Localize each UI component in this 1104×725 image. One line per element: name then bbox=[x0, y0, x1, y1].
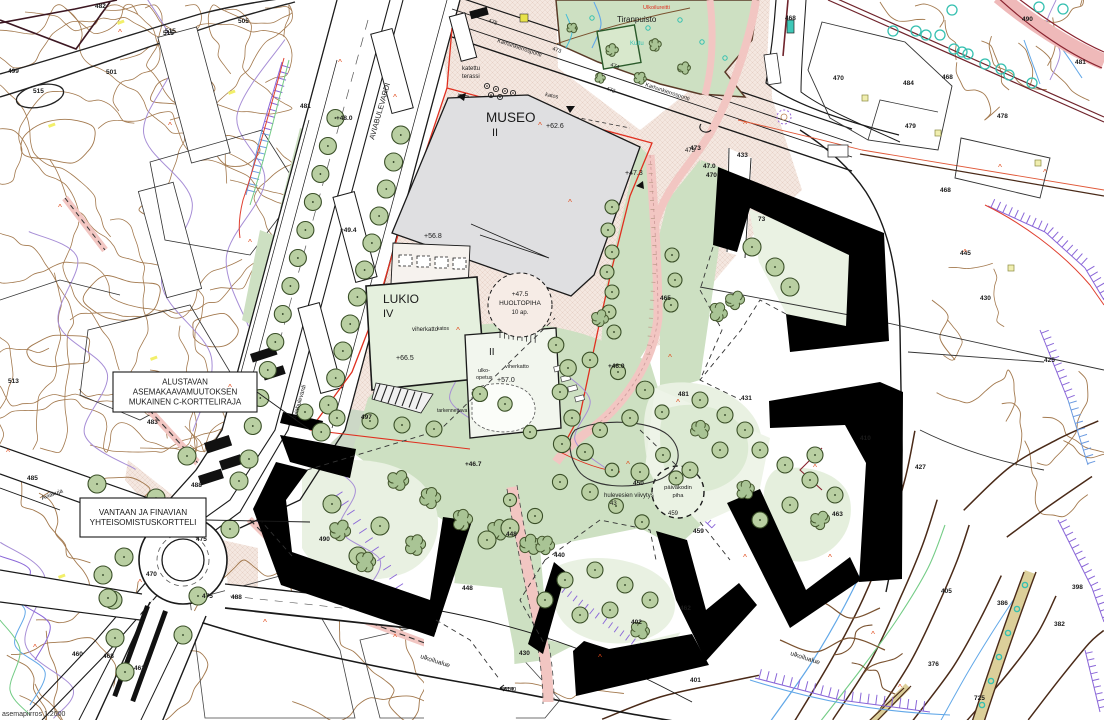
svg-text:465: 465 bbox=[660, 295, 671, 302]
svg-text:505: 505 bbox=[238, 18, 249, 25]
svg-text:473: 473 bbox=[690, 145, 701, 152]
svg-text:II: II bbox=[489, 347, 495, 358]
svg-text:479: 479 bbox=[905, 123, 916, 130]
svg-text:405: 405 bbox=[941, 588, 952, 595]
svg-text:483: 483 bbox=[147, 419, 158, 426]
svg-text:488: 488 bbox=[191, 482, 202, 489]
svg-text:459: 459 bbox=[693, 528, 704, 535]
svg-text:433: 433 bbox=[737, 152, 748, 159]
svg-text:^: ^ bbox=[393, 633, 397, 642]
svg-text:460: 460 bbox=[72, 651, 83, 658]
svg-text:VANTAAN JA FINAVIAN: VANTAAN JA FINAVIAN bbox=[99, 508, 187, 517]
svg-text:^: ^ bbox=[871, 630, 875, 639]
svg-text:386: 386 bbox=[997, 600, 1008, 607]
svg-text:484: 484 bbox=[903, 80, 914, 87]
svg-text:401: 401 bbox=[690, 677, 701, 684]
svg-text:II: II bbox=[492, 127, 498, 139]
svg-text:MUKAINEN C-KORTTELIRAJA: MUKAINEN C-KORTTELIRAJA bbox=[129, 397, 242, 406]
svg-text:+57.0: +57.0 bbox=[497, 377, 515, 384]
svg-text:431: 431 bbox=[741, 395, 752, 402]
svg-text:^: ^ bbox=[568, 198, 572, 207]
svg-text:499: 499 bbox=[8, 68, 19, 75]
svg-text:ALUSTAVAN: ALUSTAVAN bbox=[162, 378, 208, 387]
svg-text:513: 513 bbox=[8, 378, 19, 385]
svg-text:470: 470 bbox=[706, 172, 717, 179]
svg-text:450: 450 bbox=[633, 480, 644, 487]
svg-text:Tiranpuisto: Tiranpuisto bbox=[617, 15, 657, 24]
svg-text:440: 440 bbox=[554, 552, 565, 559]
svg-text:^: ^ bbox=[393, 93, 397, 102]
svg-text:Ulkoilureitti: Ulkoilureitti bbox=[643, 5, 670, 11]
svg-text:^: ^ bbox=[138, 578, 142, 587]
svg-text:^: ^ bbox=[338, 58, 342, 67]
svg-text:^: ^ bbox=[626, 460, 630, 469]
svg-text:viherkatto: viherkatto bbox=[412, 327, 439, 333]
svg-text:475: 475 bbox=[202, 593, 213, 600]
svg-text:tarkennettava: tarkennettava bbox=[437, 408, 468, 414]
svg-text:opetus: opetus bbox=[476, 375, 493, 381]
svg-text:viherkatto: viherkatto bbox=[505, 364, 529, 370]
svg-text:468: 468 bbox=[103, 653, 114, 660]
svg-text:ulko-: ulko- bbox=[478, 368, 490, 374]
svg-text:^: ^ bbox=[1043, 168, 1047, 177]
svg-text:47.0: 47.0 bbox=[703, 163, 716, 170]
svg-text:^: ^ bbox=[456, 326, 460, 335]
svg-text:^: ^ bbox=[813, 463, 817, 472]
svg-text:481: 481 bbox=[678, 391, 689, 398]
svg-text:^: ^ bbox=[963, 248, 967, 257]
svg-text:468: 468 bbox=[942, 74, 953, 81]
svg-text:430: 430 bbox=[980, 295, 991, 302]
svg-text:^: ^ bbox=[898, 683, 902, 692]
svg-text:448: 448 bbox=[506, 531, 517, 538]
svg-text:73: 73 bbox=[758, 216, 766, 223]
svg-text:398: 398 bbox=[1072, 584, 1083, 591]
svg-text:501: 501 bbox=[106, 69, 117, 76]
svg-text:490: 490 bbox=[319, 536, 330, 543]
svg-text:+56.8: +56.8 bbox=[424, 233, 442, 240]
svg-text:^: ^ bbox=[33, 643, 37, 652]
svg-text:430: 430 bbox=[519, 650, 530, 657]
svg-text:^: ^ bbox=[263, 618, 267, 627]
svg-text:LUKIO: LUKIO bbox=[383, 292, 419, 306]
svg-text:^: ^ bbox=[668, 353, 672, 362]
svg-text:+62.6: +62.6 bbox=[546, 123, 564, 130]
svg-text:katos: katos bbox=[437, 326, 449, 332]
svg-text:402: 402 bbox=[631, 619, 642, 626]
svg-text:725: 725 bbox=[974, 695, 985, 702]
svg-text:427: 427 bbox=[915, 464, 926, 471]
svg-text:515: 515 bbox=[165, 28, 176, 35]
svg-text:^: ^ bbox=[58, 203, 62, 212]
svg-text:^: ^ bbox=[6, 448, 10, 457]
svg-text:468: 468 bbox=[940, 187, 951, 194]
svg-text:410: 410 bbox=[860, 435, 871, 442]
svg-text:Kultu: Kultu bbox=[630, 41, 644, 47]
svg-text:päiväkodin: päiväkodin bbox=[664, 485, 692, 491]
svg-text:^: ^ bbox=[228, 383, 232, 392]
svg-text:482: 482 bbox=[95, 3, 106, 10]
svg-text:^: ^ bbox=[676, 398, 680, 407]
svg-text:katettu: katettu bbox=[462, 66, 480, 72]
svg-text:497: 497 bbox=[361, 414, 372, 421]
svg-text:piha: piha bbox=[673, 493, 685, 499]
svg-text:asemapiirros 1:2000: asemapiirros 1:2000 bbox=[2, 711, 66, 718]
svg-text:515: 515 bbox=[33, 88, 44, 95]
svg-text:+46.0: +46.0 bbox=[608, 363, 625, 370]
svg-text:488: 488 bbox=[231, 594, 242, 601]
svg-text:^: ^ bbox=[743, 553, 747, 562]
svg-text:481: 481 bbox=[300, 103, 311, 110]
svg-text:470: 470 bbox=[146, 571, 157, 578]
svg-text:^: ^ bbox=[743, 120, 747, 129]
svg-text:+46.7: +46.7 bbox=[465, 461, 482, 468]
svg-text:MUSEO: MUSEO bbox=[486, 110, 536, 125]
svg-text:^: ^ bbox=[998, 163, 1002, 172]
svg-text:^: ^ bbox=[598, 653, 602, 662]
svg-text:462: 462 bbox=[680, 605, 691, 612]
svg-text:376: 376 bbox=[928, 661, 939, 668]
svg-text:terassi: terassi bbox=[462, 74, 480, 80]
svg-text:^: ^ bbox=[118, 28, 122, 37]
svg-text:+66.5: +66.5 bbox=[396, 355, 414, 362]
svg-text:^: ^ bbox=[538, 121, 542, 130]
svg-text:425: 425 bbox=[1044, 357, 1055, 364]
svg-text:IV: IV bbox=[383, 308, 394, 320]
svg-text:hulevesien viivytys: hulevesien viivytys bbox=[604, 493, 654, 499]
svg-text:463: 463 bbox=[134, 665, 145, 672]
svg-text:478: 478 bbox=[997, 113, 1008, 120]
svg-text:468: 468 bbox=[785, 15, 796, 22]
svg-text:ASEMAKAAVAMUUTOKSEN: ASEMAKAAVAMUUTOKSEN bbox=[133, 388, 238, 397]
svg-text:470: 470 bbox=[833, 75, 844, 82]
svg-text:^: ^ bbox=[168, 121, 172, 130]
svg-text:+47.5: +47.5 bbox=[512, 291, 529, 298]
svg-text:^: ^ bbox=[248, 238, 252, 247]
svg-text:43: 43 bbox=[610, 501, 617, 507]
svg-text:+48.0: +48.0 bbox=[336, 115, 353, 122]
svg-text:HUOLTOPIHA: HUOLTOPIHA bbox=[499, 300, 541, 307]
svg-text:459: 459 bbox=[668, 511, 679, 517]
svg-text:6140: 6140 bbox=[504, 687, 516, 693]
svg-text:+47.3: +47.3 bbox=[625, 170, 643, 177]
svg-text:490: 490 bbox=[1022, 16, 1033, 23]
svg-text:382: 382 bbox=[1054, 621, 1065, 628]
svg-text:+49.4: +49.4 bbox=[340, 227, 357, 234]
svg-text:463: 463 bbox=[832, 511, 843, 518]
svg-text:YHTEISOMISTUSKORTTELI: YHTEISOMISTUSKORTTELI bbox=[90, 518, 197, 527]
svg-text:448: 448 bbox=[462, 585, 473, 592]
svg-text:10 ap.: 10 ap. bbox=[512, 310, 529, 316]
svg-text:481: 481 bbox=[1075, 59, 1086, 66]
svg-text:^: ^ bbox=[828, 553, 832, 562]
svg-text:485: 485 bbox=[27, 475, 38, 482]
